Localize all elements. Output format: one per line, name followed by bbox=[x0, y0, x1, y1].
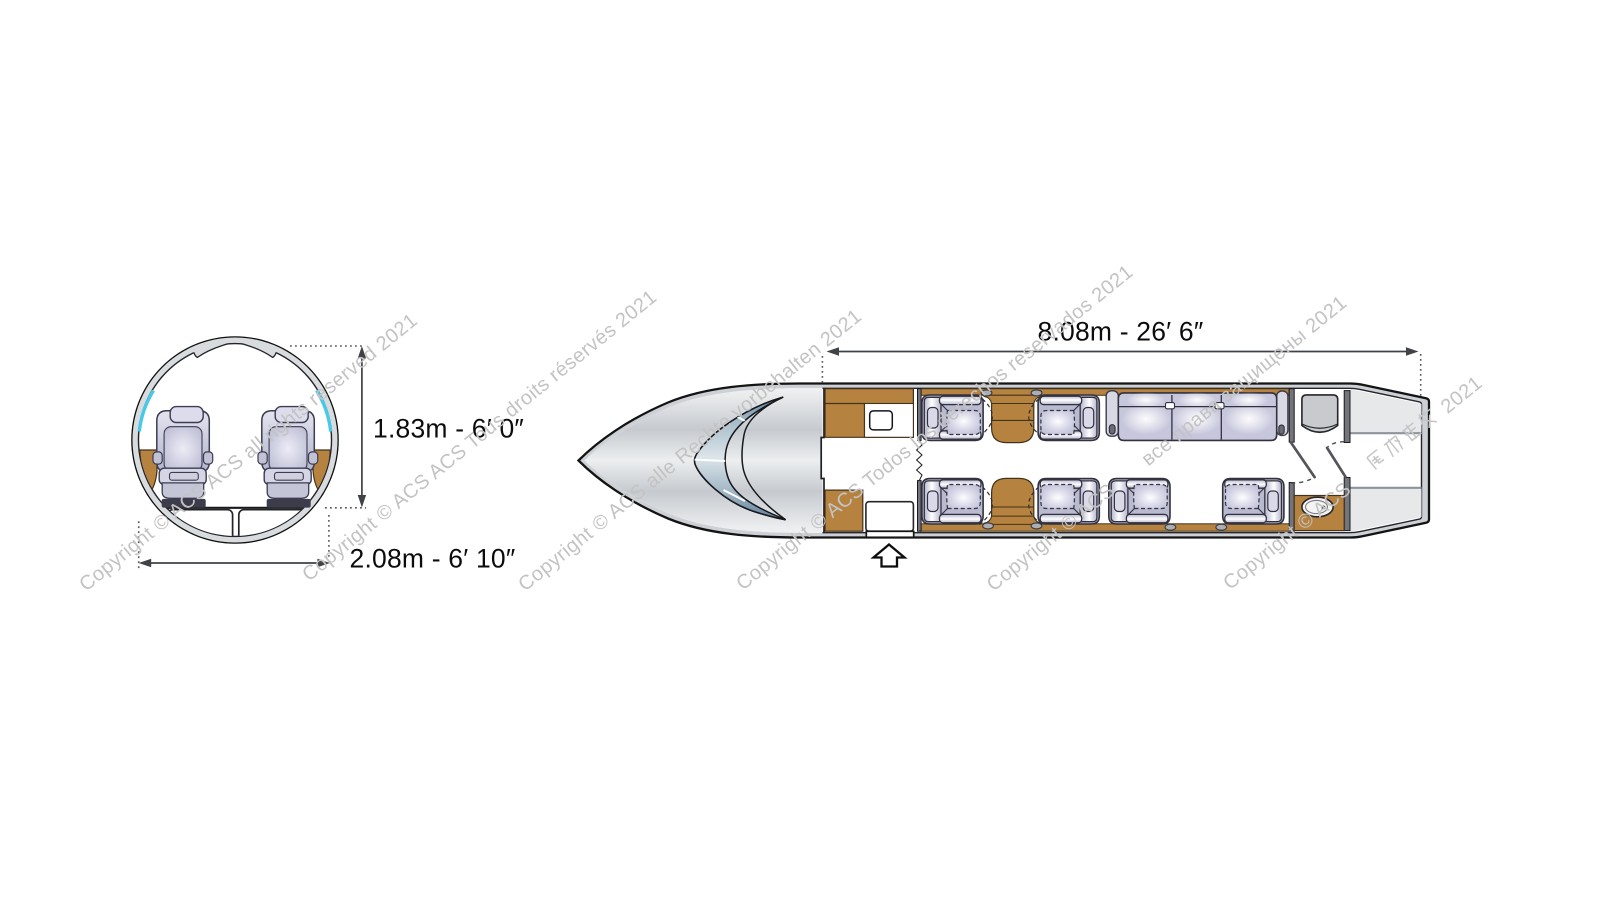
svg-text:2021: 2021 bbox=[1437, 372, 1487, 418]
svg-text:2.08m - 6′ 10″: 2.08m - 6′ 10″ bbox=[350, 544, 516, 574]
